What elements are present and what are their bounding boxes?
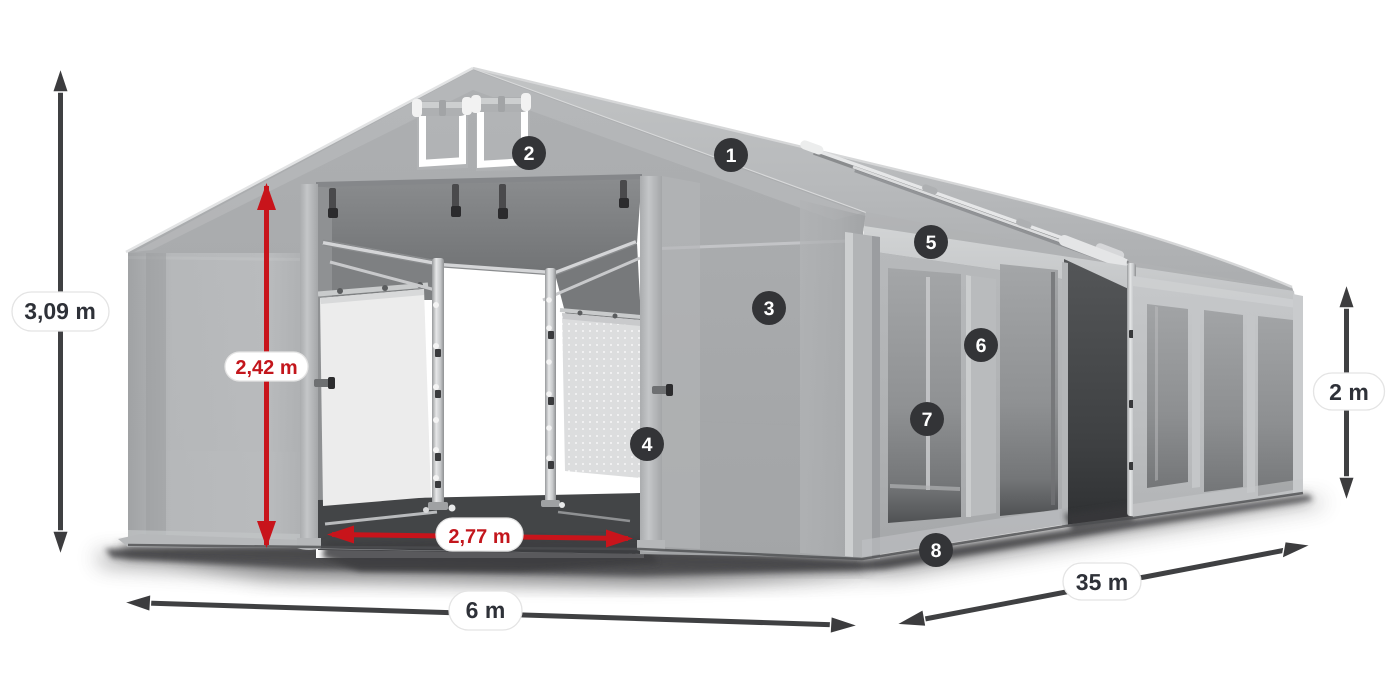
svg-text:8: 8 [931, 540, 942, 562]
svg-text:2,42 m: 2,42 m [235, 357, 297, 379]
svg-text:7: 7 [922, 409, 933, 431]
svg-text:3,09 m: 3,09 m [24, 298, 96, 324]
svg-text:4: 4 [642, 434, 653, 456]
svg-text:3: 3 [764, 298, 775, 320]
svg-text:2 m: 2 m [1329, 379, 1369, 405]
svg-text:2,77 m: 2,77 m [448, 526, 510, 548]
svg-text:6: 6 [976, 335, 987, 357]
svg-text:6 m: 6 m [466, 597, 506, 623]
svg-text:1: 1 [726, 145, 737, 167]
svg-text:2: 2 [524, 143, 535, 165]
svg-text:5: 5 [926, 232, 937, 254]
svg-text:35 m: 35 m [1076, 569, 1128, 595]
